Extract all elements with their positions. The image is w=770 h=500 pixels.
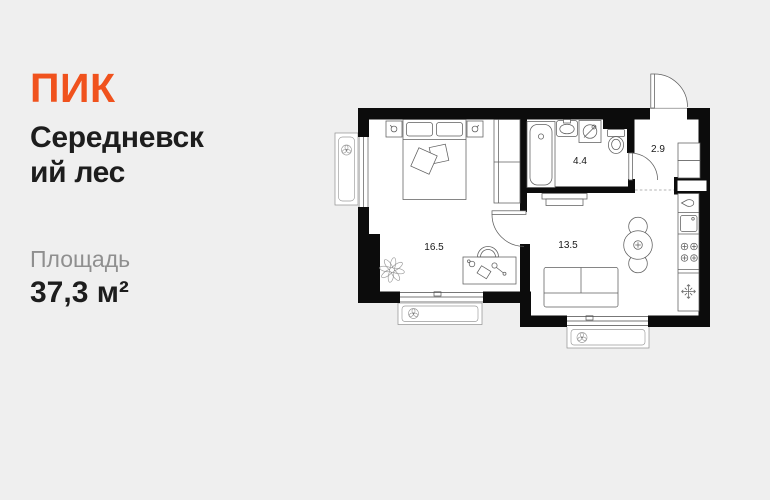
floor-plan: 16.5 4.4 2.9 13.5 — [318, 60, 710, 362]
washing-machine — [579, 121, 601, 143]
project-title: Середневск ий лес — [30, 120, 204, 190]
ac-unit-living — [567, 327, 649, 349]
room-area-living: 13.5 — [558, 240, 578, 251]
info-panel: ПИК Середневск ий лес Площадь 37,3 м² — [30, 68, 315, 348]
hall-cabinet — [678, 143, 700, 178]
room-area-hallway: 2.9 — [651, 144, 665, 155]
desk — [463, 257, 516, 284]
nightstand-left — [386, 121, 402, 137]
bathtub — [527, 122, 555, 188]
dining-table — [624, 231, 653, 260]
bathroom-sink — [557, 120, 578, 137]
sofa — [544, 268, 618, 308]
project-title-line1: Середневск — [30, 120, 204, 155]
project-title-line2: ий лес — [30, 155, 204, 190]
pik-logo: ПИК — [30, 68, 115, 109]
area-value: 37,3 м² — [30, 276, 129, 310]
duct-shaft — [674, 177, 710, 195]
toilet — [608, 130, 625, 154]
room-area-bathroom: 4.4 — [573, 156, 587, 167]
ac-unit-left — [335, 133, 358, 205]
window-living-bottom — [567, 316, 648, 328]
wardrobe — [494, 120, 520, 204]
room-area-bedroom: 16.5 — [424, 242, 444, 253]
nightstand-right — [467, 121, 483, 137]
window-bedroom-bottom — [400, 292, 483, 304]
tv-stand — [542, 194, 587, 206]
window-bedroom-left — [358, 137, 369, 207]
ac-unit-bedroom — [398, 303, 482, 325]
listing-card: ПИК Середневск ий лес Площадь 37,3 м² — [0, 0, 770, 500]
area-label: Площадь — [30, 246, 130, 272]
bed — [403, 120, 466, 200]
kitchen-counter — [678, 194, 699, 312]
